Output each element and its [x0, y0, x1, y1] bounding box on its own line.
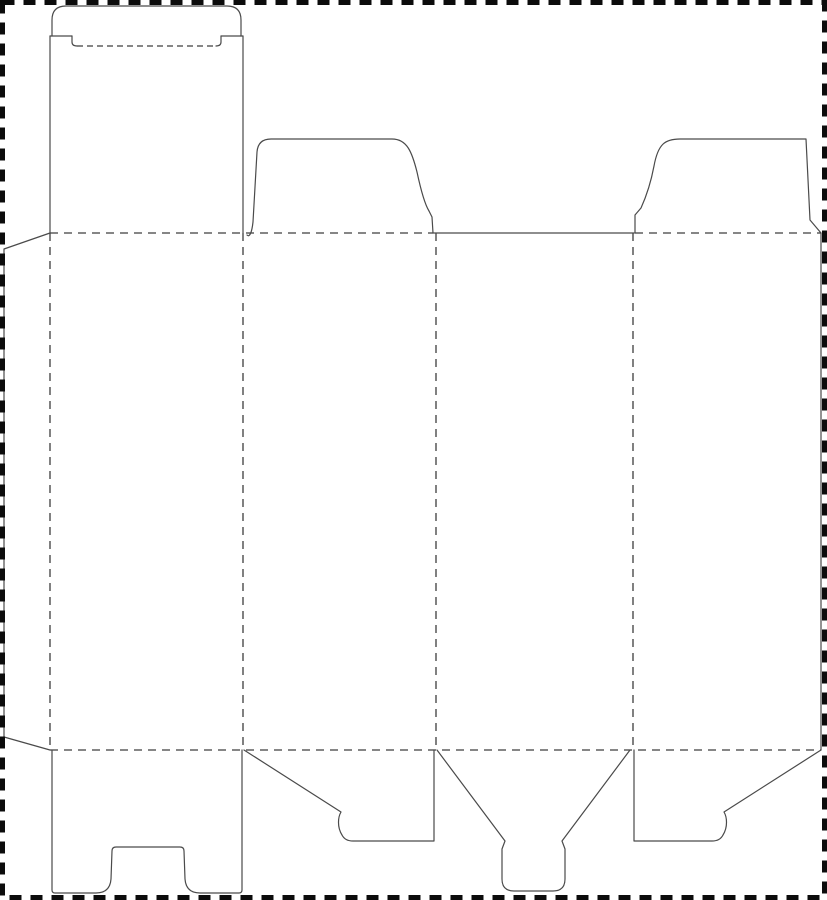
cut-lines-group [4, 6, 821, 893]
top-dust-flap-right-outline [635, 139, 821, 233]
top-dust-flap-left-outline [247, 139, 433, 236]
bottom-tongue-flap-outline [437, 750, 630, 891]
bottom-dust-flap-left-outline [244, 750, 434, 841]
bottom-lock-flap-outline [52, 750, 242, 893]
sheet-cut-boundary [3, 3, 825, 898]
box-dieline-template [0, 0, 827, 900]
dieline-sheet [0, 0, 827, 900]
tuck-flap-right-slit-hook [216, 36, 221, 46]
bottom-dust-flap-right-outline [634, 750, 821, 841]
glue-flap-outline [4, 233, 50, 750]
tuck-flap-outline [52, 6, 241, 36]
fold-lines-group [50, 46, 821, 750]
tuck-flap-left-slit-hook [72, 36, 77, 46]
